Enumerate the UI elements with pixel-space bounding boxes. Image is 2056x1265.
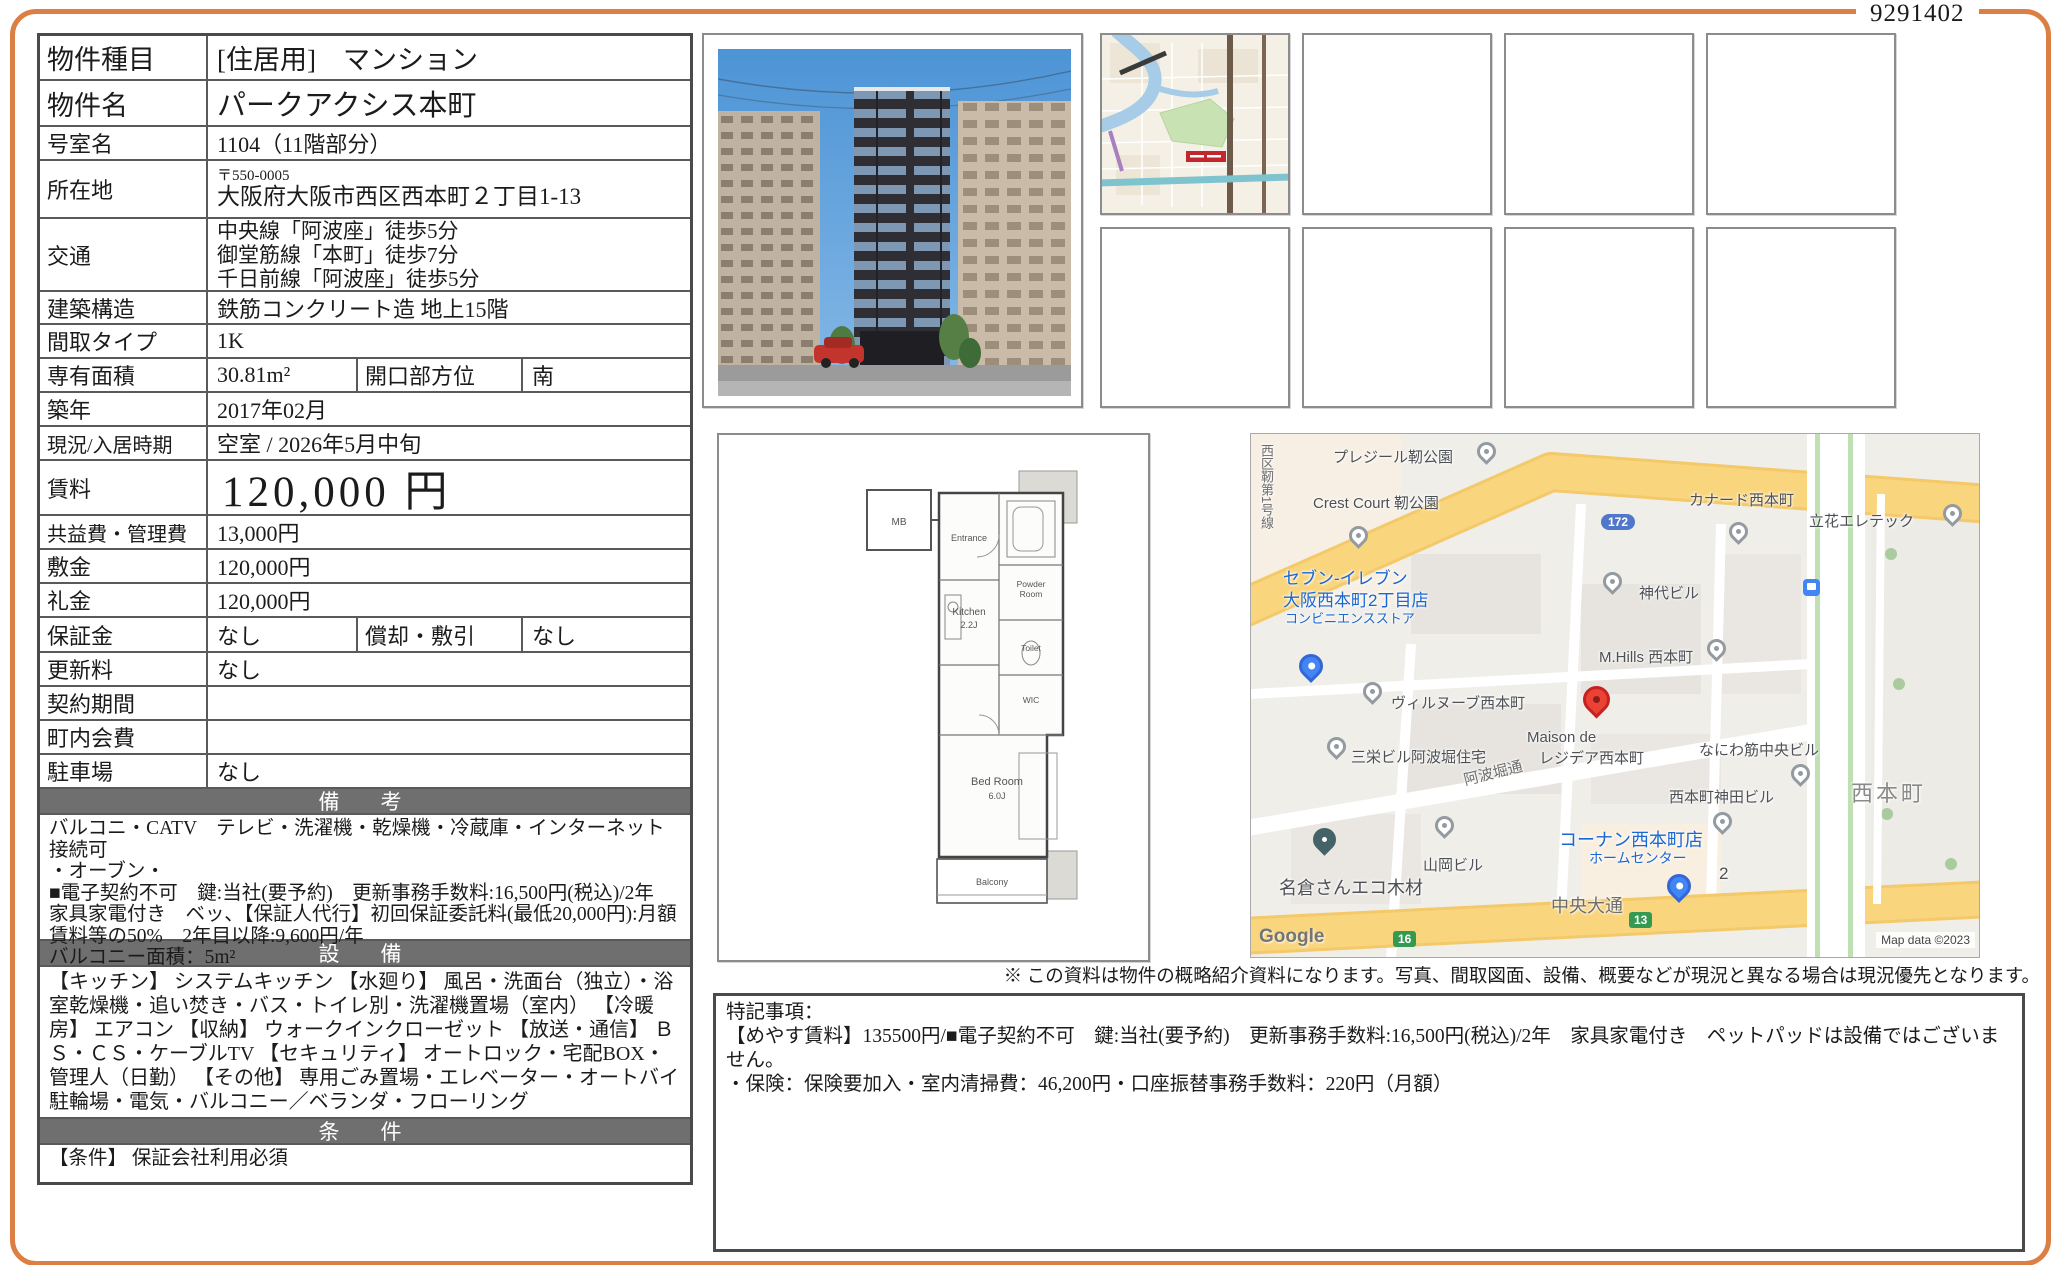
- poi-label: レジデア西本町: [1539, 747, 1644, 768]
- transit-line: 御堂筋線「本町」徒歩7分: [217, 243, 459, 267]
- room-size-bedroom: 6.0J: [988, 791, 1005, 801]
- table-row: 所在地 〒550-0005 大阪府大阪市西区西本町２丁目1-13: [40, 161, 690, 219]
- row-value: 120,000円: [208, 584, 690, 616]
- building-photo: [718, 49, 1071, 396]
- table-row: 町内会費: [40, 721, 690, 755]
- room-label-powder2: Room: [1020, 589, 1043, 599]
- table-row: 建築構造 鉄筋コンクリート造 地上15階: [40, 292, 690, 325]
- table-row: 専有面積 30.81m² 開口部方位 南: [40, 359, 690, 393]
- table-row: 賃料 120,000 円: [40, 461, 690, 516]
- room-label-entrance: Entrance: [951, 533, 987, 543]
- row-value: パークアクシス本町: [208, 81, 690, 125]
- row-label: 現況/入居時期: [40, 427, 208, 459]
- table-row: 号室名 1104（11階部分）: [40, 127, 690, 161]
- poi-label: ヴィルヌーブ西本町: [1391, 692, 1525, 713]
- postal-code: 〒550-0005: [217, 168, 290, 184]
- table-row: 築年 2017年02月: [40, 393, 690, 427]
- row-value: なし: [208, 653, 690, 685]
- empty-photo-box: [1706, 227, 1896, 408]
- row-label: 町内会費: [40, 721, 208, 753]
- poi-label: 2: [1719, 864, 1728, 884]
- biko-text: バルコニ・CATV テレビ・洗濯機・乾燥機・冷蔵庫・インターネット接続可 ・オー…: [40, 815, 690, 941]
- empty-photo-box: [1504, 227, 1694, 408]
- poi-label: 三栄ビル阿波堀住宅: [1351, 746, 1486, 767]
- row-label: 更新料: [40, 653, 208, 685]
- row-value: 〒550-0005 大阪府大阪市西区西本町２丁目1-13: [208, 161, 690, 217]
- table-row: 保証金 なし 償却・敷引 なし: [40, 618, 690, 653]
- row-label: 保証金: [40, 618, 208, 651]
- room-label-mb: MB: [892, 517, 907, 528]
- row-label: 号室名: [40, 127, 208, 159]
- row-value: [208, 721, 690, 753]
- google-map[interactable]: プレジール靭公園 Crest Court 靭公園 西区靭第1号線 172 カナー…: [1250, 433, 1980, 958]
- row-label: 物件名: [40, 81, 208, 125]
- poi-label: 西本町神田ビル: [1669, 786, 1774, 807]
- row-label: 建築構造: [40, 292, 208, 323]
- row-value: 鉄筋コンクリート造 地上15階: [208, 292, 690, 323]
- area-label: 西本町: [1851, 776, 1926, 808]
- special-notes-line: 【めやす賃料】135500円/■電子契約不可 鍵:当社(要予約) 更新事務手数料…: [726, 1025, 2012, 1073]
- poi-label: 名倉さんエコ木材: [1279, 874, 1423, 900]
- row-value-2: 南: [523, 359, 690, 391]
- table-row: 共益費・管理費 13,000円: [40, 516, 690, 550]
- row-value: 120,000円: [208, 550, 690, 582]
- row-label: 駐車場: [40, 755, 208, 787]
- empty-photo-box: [1302, 33, 1492, 215]
- row-value: 2017年02月: [208, 393, 690, 425]
- row-label: 物件種目: [40, 36, 208, 79]
- row-value: [住居用] マンション: [208, 36, 690, 79]
- row-label: 専有面積: [40, 359, 208, 391]
- special-notes-box: 特記事項： 【めやす賃料】135500円/■電子契約不可 鍵:当社(要予約) 更…: [713, 993, 2025, 1252]
- empty-photo-box: [1100, 227, 1290, 408]
- empty-photo-box: [1302, 227, 1492, 408]
- area-map-thumbnail: [1102, 35, 1288, 213]
- row-label: 契約期間: [40, 687, 208, 719]
- building-photo-box: [702, 33, 1083, 408]
- rent-value: 120,000 円: [208, 461, 690, 514]
- room-label-powder: Powder: [1017, 579, 1046, 589]
- poi-label: なにわ筋中央ビル: [1699, 739, 1819, 760]
- map-attribution: Map data ©2023: [1876, 932, 1975, 948]
- biko-line: バルコニ・CATV テレビ・洗濯機・乾燥機・冷蔵庫・インターネット接続可: [49, 818, 681, 861]
- floorplan: MB Entrance Kitchen 2: [719, 435, 1148, 960]
- route-shield-16: 16: [1393, 931, 1416, 947]
- row-value: 中央線「阿波座」徒歩5分 御堂筋線「本町」徒歩7分 千日前線「阿波座」徒歩5分: [208, 219, 690, 290]
- route-shield-13: 13: [1629, 912, 1652, 928]
- row-value: 1104（11階部分）: [208, 127, 690, 159]
- room-label-bedroom: Bed Room: [971, 776, 1023, 788]
- poi-label: 山岡ビル: [1423, 854, 1483, 875]
- room-size-kitchen: 2.2J: [960, 620, 977, 630]
- row-value: 空室 / 2026年5月中旬: [208, 427, 690, 459]
- table-row: 更新料 なし: [40, 653, 690, 687]
- row-value: なし: [208, 618, 358, 651]
- empty-photo-box: [1706, 33, 1896, 215]
- property-table: 物件種目 [住居用] マンション 物件名 パークアクシス本町 号室名 1104（…: [37, 33, 693, 1185]
- poi-label: 立花エレテック: [1809, 510, 1914, 531]
- poi-label: コンビニエンスストア: [1285, 608, 1415, 627]
- table-row: 交通 中央線「阿波座」徒歩5分 御堂筋線「本町」徒歩7分 千日前線「阿波座」徒歩…: [40, 219, 690, 292]
- row-label: 賃料: [40, 461, 208, 514]
- row-label: 所在地: [40, 161, 208, 217]
- joken-text: 【条件】 保証会社利用必須: [40, 1145, 690, 1182]
- area-map-thumbnail-box: [1100, 33, 1290, 215]
- row-value: 30.81m²: [208, 359, 358, 391]
- address: 大阪府大阪市西区西本町２丁目1-13: [217, 184, 581, 210]
- row-value: なし: [208, 755, 690, 787]
- transit-line: 千日前線「阿波座」徒歩5分: [217, 267, 480, 291]
- row-label-2: 償却・敷引: [358, 618, 523, 651]
- transit-station-icon: [1803, 579, 1820, 596]
- room-label-toilet: Toilet: [1021, 643, 1041, 653]
- poi-label: カナード西本町: [1689, 489, 1794, 510]
- poi-label: M.Hills 西本町: [1599, 646, 1693, 667]
- road-label: 中央大通: [1551, 892, 1623, 918]
- poi-label: ホームセンター: [1589, 848, 1687, 868]
- table-row: 物件種目 [住居用] マンション: [40, 36, 690, 81]
- section-header-biko: 備 考: [40, 789, 690, 815]
- row-label: 間取タイプ: [40, 325, 208, 357]
- empty-photo-box: [1504, 33, 1694, 215]
- table-row: 礼金 120,000円: [40, 584, 690, 618]
- google-logo: Google: [1259, 926, 1324, 948]
- property-flyer-page: 9291402 物件種目 [住居用] マンション 物件名 パークアクシス本町 号…: [0, 0, 2056, 1265]
- floorplan-box: MB Entrance Kitchen 2: [717, 433, 1150, 962]
- transit-line: 中央線「阿波座」徒歩5分: [217, 219, 459, 243]
- special-notes-line: ・保険：保険要加入・室内清掃費：46,200円・口座振替事務手数料：220円（月…: [726, 1073, 2012, 1097]
- table-row: 敷金 120,000円: [40, 550, 690, 584]
- property-marker: [1186, 151, 1226, 162]
- document-number: 9291402: [1856, 0, 1979, 28]
- table-row: 契約期間: [40, 687, 690, 721]
- biko-line: ・オーブン・: [49, 861, 681, 883]
- row-label: 礼金: [40, 584, 208, 616]
- row-value: 13,000円: [208, 516, 690, 548]
- room-label-kitchen: Kitchen: [952, 607, 985, 618]
- row-label: 交通: [40, 219, 208, 290]
- special-notes-title: 特記事項：: [726, 1001, 2012, 1025]
- setsubi-text: 【キッチン】 システムキッチン 【水廻り】 風呂・洗面台（独立）・浴室乾燥機・追…: [40, 967, 690, 1119]
- poi-label: Crest Court 靭公園: [1313, 492, 1439, 513]
- row-label: 敷金: [40, 550, 208, 582]
- table-row: 物件名 パークアクシス本町: [40, 81, 690, 127]
- room-label-balcony: Balcony: [976, 877, 1009, 887]
- table-row: 間取タイプ 1K: [40, 325, 690, 359]
- section-header-joken: 条 件: [40, 1119, 690, 1145]
- row-value: [208, 687, 690, 719]
- room-label-wic: WIC: [1023, 695, 1040, 705]
- row-label: 共益費・管理費: [40, 516, 208, 548]
- row-value-2: なし: [523, 618, 690, 651]
- road-label: 西区靭第1号線: [1257, 444, 1276, 529]
- route-shield-172: 172: [1601, 514, 1635, 530]
- poi-label: Maison de: [1527, 729, 1596, 746]
- poi-label: 神代ビル: [1639, 582, 1699, 603]
- row-value: 1K: [208, 325, 690, 357]
- disclaimer-note: ※ この資料は物件の概略紹介資料になります。写真、間取図面、設備、概要などが現況…: [713, 962, 2040, 988]
- row-label: 築年: [40, 393, 208, 425]
- table-row: 駐車場 なし: [40, 755, 690, 789]
- row-label-2: 開口部方位: [358, 359, 523, 391]
- poi-label: プレジール靭公園: [1333, 446, 1453, 467]
